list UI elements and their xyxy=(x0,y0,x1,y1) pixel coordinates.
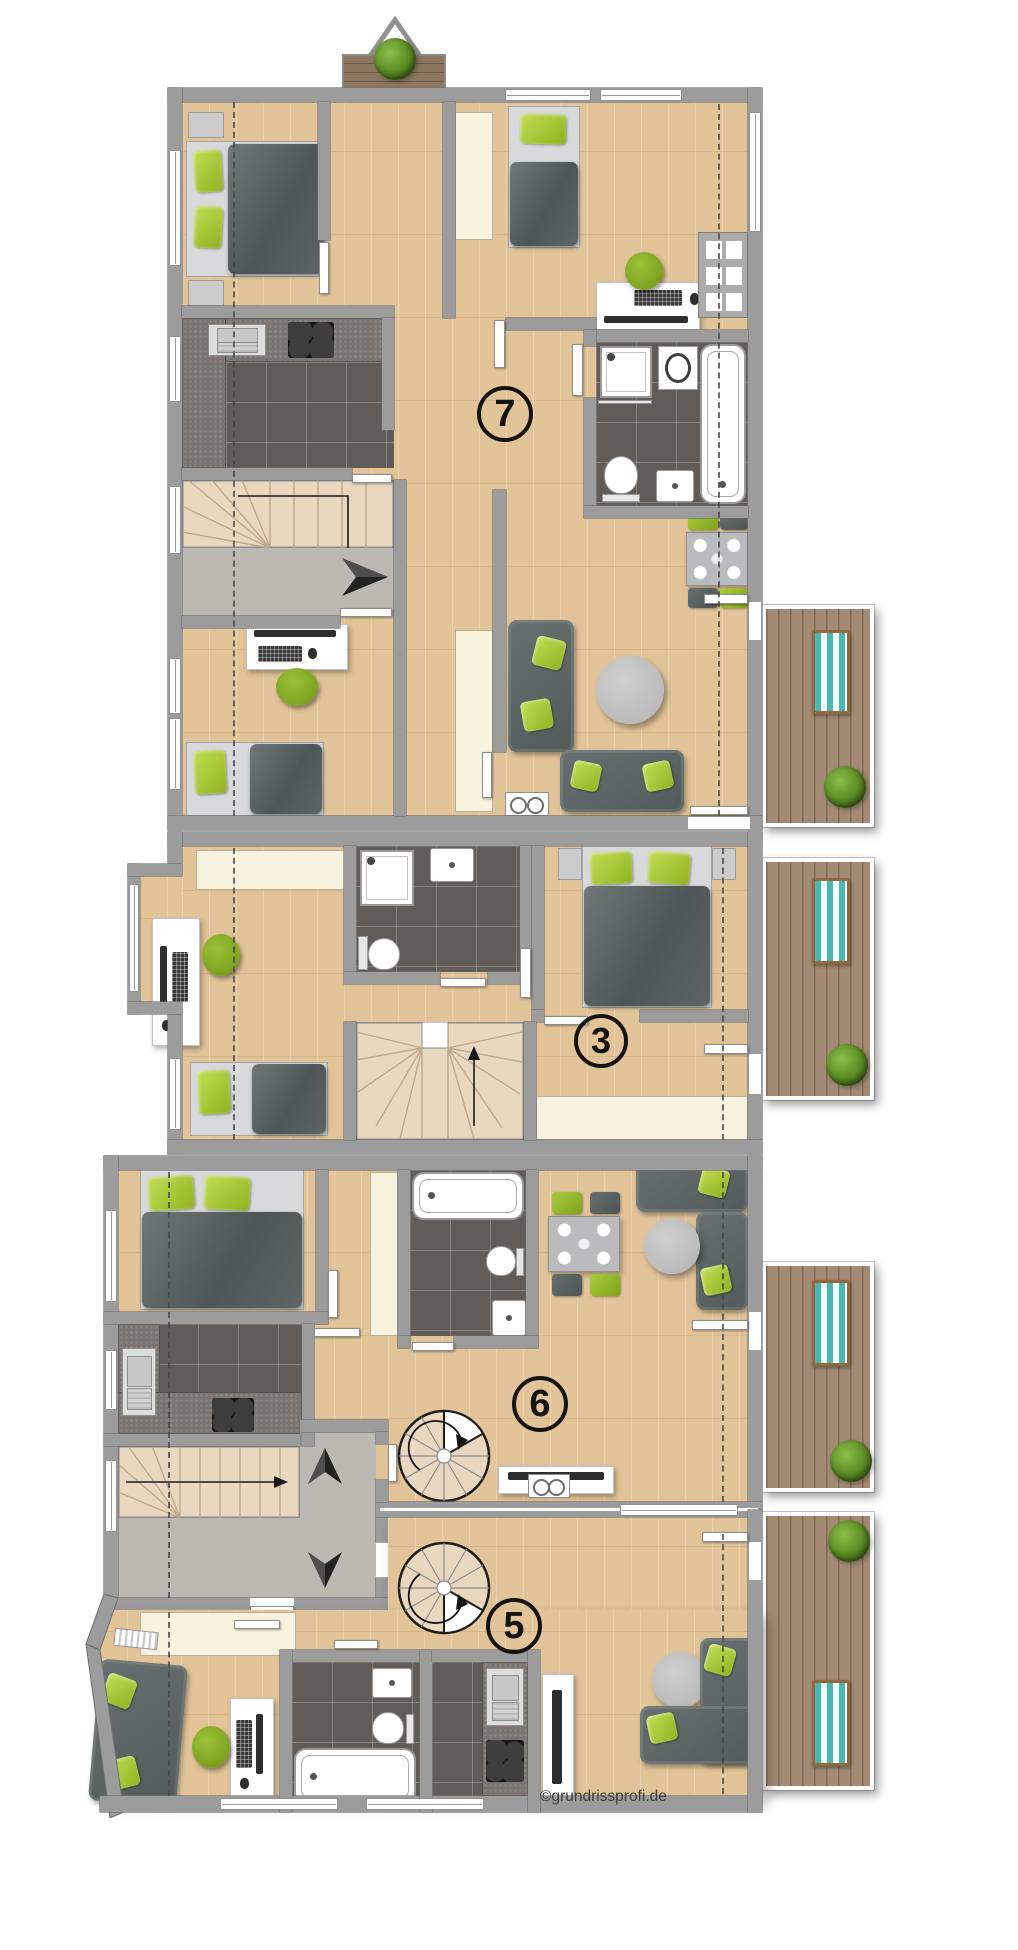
keyboard-icon xyxy=(236,1720,252,1768)
inner-wall xyxy=(280,1650,432,1662)
door-leaf xyxy=(702,1532,748,1542)
section-line xyxy=(168,1612,170,1796)
monitor-icon xyxy=(256,1714,263,1774)
door-leaf xyxy=(234,1620,280,1629)
wardrobe xyxy=(140,1612,296,1656)
inner-wall xyxy=(528,1650,540,1812)
inner-wall xyxy=(420,1650,432,1812)
unit-5: 5 ©grundrissprofi.de xyxy=(0,0,1018,1950)
slanted-outer-wall xyxy=(76,1592,140,1818)
window xyxy=(366,1798,484,1810)
window-mullion xyxy=(368,1804,482,1805)
tv-icon xyxy=(552,1690,562,1784)
cushion xyxy=(645,1711,678,1744)
kitchen-sink-icon xyxy=(486,1668,524,1726)
window xyxy=(220,1798,338,1810)
window-mullion xyxy=(222,1804,336,1805)
stove-icon xyxy=(486,1740,524,1782)
spiral-staircase xyxy=(396,1540,492,1636)
mouse-icon xyxy=(240,1778,249,1789)
office-chair xyxy=(192,1726,230,1768)
toilet-tank xyxy=(406,1714,414,1744)
washbasin-icon xyxy=(372,1668,412,1698)
floor-plan-canvas: 7 xyxy=(0,0,1018,1950)
unit-label: 5 xyxy=(486,1598,542,1654)
doorway xyxy=(749,1542,761,1580)
door-leaf xyxy=(334,1640,378,1649)
toilet-icon xyxy=(372,1712,404,1744)
section-line xyxy=(722,1534,724,1794)
watermark: ©grundrissprofi.de xyxy=(540,1788,667,1806)
inner-wall xyxy=(280,1650,292,1812)
